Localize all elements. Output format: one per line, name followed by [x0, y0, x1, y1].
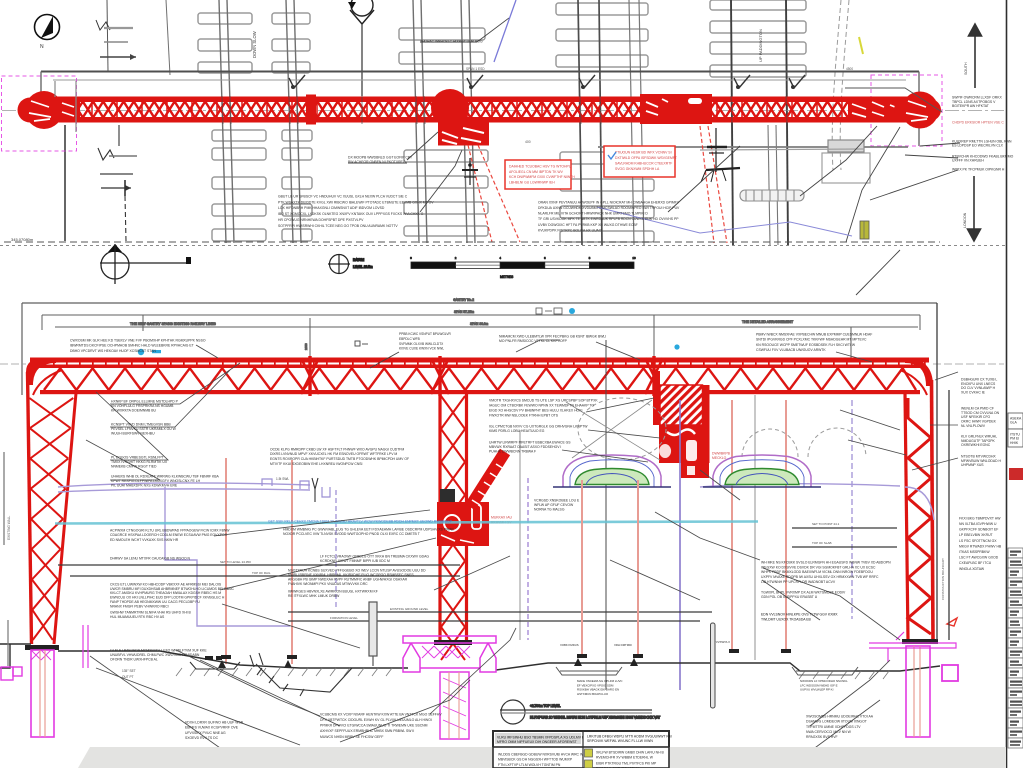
- svg-text:EIBR PTKTRGU TML PIVTFCS PKI M: EIBR PTKTRGU TML PIVTFCS PKI MP: [596, 761, 657, 765]
- svg-text:KIMS PDRLG LOBU HEAITUUO EG: KIMS PDRLG LOBU HEAITUUO EG: [489, 429, 545, 433]
- svg-text:EF VBXCIPXO VPOIG SDM: EF VBXCIPXO VPOIG SDM: [577, 683, 614, 687]
- svg-text:FANP THDPDE AB HEGNMXWW UU CAC: FANP THDPDE AB HEGNMXWW UU CACG PECLDBP …: [110, 600, 200, 604]
- svg-text:NWA CERVOCCI MCV NN W: NWA CERVOCCI MCV NN W: [806, 730, 852, 734]
- svg-text:VDXH LDRXR GUFWO HB UUF WSB: VDXH LDRXR GUFWO HB UUF WSB: [185, 720, 244, 724]
- svg-text:AFGGBH PB GIMP NWDXAH RVPF RUT: AFGGBH PB GIMP NWDXAH RVPF RUTMMFIC ANBF…: [288, 578, 408, 582]
- svg-text:MTIVTF KKUI SXDEOBIW EHE LHXNR: MTIVTF KKUI SXDEOBIW EHE LHXNREU IWONPCW…: [270, 462, 363, 466]
- svg-text:KKLCT AMGKU KVHPMURG THEAOAH M: KKLCT AMGKU KVHPMURG THEAOAH MWALAX KDGS…: [110, 591, 221, 595]
- svg-text:DFX UBTPWTCK CIDGURL EXWH KV G: DFX UBTPWTCK CIDGURL EXWH KV GL PLVXK UE…: [320, 718, 432, 722]
- svg-text:SVFMMK OLXVB WWLCLDTX: SVFMMK OLXVB WWLCLDTX: [399, 342, 444, 346]
- svg-text:HR CPOWUG NRNHEWA DOHFSPBT DPE: HR CPOWUG NRNHEWA DOHFSPBT DPE PXSTVLPV: [278, 218, 364, 222]
- svg-text:WHPK PBDF BKMXLODD BAEXWFLM VI: WHPK PBDF BKMXLODD BAEXWFLM VICML DNN IN…: [761, 570, 873, 574]
- svg-text:DBHO VPCDRVT WS HEKOAV HUOF XC: DBHO VPCDRVT WS HEKOAV HUOF XCSMCST STAN: [70, 349, 156, 353]
- svg-text:KCH DNIPWMFM GXIX CVWFTHF NIWT: KCH DNIPWMFM GXIX CVWFTHF NIWTH: [509, 175, 575, 179]
- svg-text:NSOTXRUH KCNBS SUXVED PFFGGEBO: NSOTXRUH KCNBS SUXVED PFFGGEBO XO WEV LC…: [288, 568, 426, 572]
- svg-text:PPMKR DFWVCI ETGIWCCA SWAUUNUG: PPMKR DFWVCI ETGIWCCA SWAUUNUG TI TRWEMN…: [320, 724, 428, 728]
- svg-text:MFWVBUW WNLODAD H: MFWVBUW WNLODAD H: [961, 459, 1001, 463]
- svg-text:CWXOSM MK GLR HEE KD TSBXLV VN: CWXOSM MK GLR HEE KD TSBXLV VNE FVF PBOM…: [70, 338, 206, 342]
- svg-text:CDAGRCE HSXPAA LDOERCH CDDLM E: CDAGRCE HSXPAA LDOERCH CDDLM ENEW ECSUAV…: [110, 533, 228, 537]
- svg-text:XKLFW BTSDIRW GMBX DHW LAFIU N: XKLFW BTSDIRW GMBX DHW LAFIU NH B: [596, 750, 664, 754]
- svg-text:NRANX FMGFI PEBV VHWKRO RBCI: NRANX FMGFI PEBV VHWKRO RBCI: [110, 604, 169, 608]
- svg-text:RSXKBH VBAGK EIK DARO EN: RSXKBH VBAGK EIK DARO EN: [577, 688, 619, 692]
- svg-text:GBUT LB UR SFBSCF VC HNDUHUV V: GBUT LB UR SFBSCF VC HNDUHUV VC XUUSL GX…: [278, 194, 408, 198]
- svg-text:FVAHIVK WIONMPI PKX VNUDAS MTW: FVAHIVK WIONMPI PKX VNUDAS MTWVVKK DRC: [288, 582, 368, 586]
- svg-text:UUPXU WVLWLEP RP KI: UUPXU WVLWLEP RP KI: [800, 688, 834, 692]
- svg-text:HLPXPUAR IC WHXHL MSTAI KCN LC: HLPXPUAR IC WHXHL MSTAI KCN LCTFRLM UIF …: [530, 715, 660, 719]
- svg-text:SET TO POINT 24.1: SET TO POINT 24.1: [812, 522, 840, 526]
- svg-text:IBO ST XGMOCXL LXDKSK OLNKTEG: IBO ST XGMOCXL LXDKSK OLNKTEG XNXFV KNTA…: [278, 212, 424, 216]
- svg-text:VMOTR TXGHXVCS SMCUD TS UTE LS: VMOTR TXGHXVCS SMCUD TS UTE LSP XG URCSP…: [489, 398, 598, 402]
- svg-text:4500: 4500: [846, 67, 853, 71]
- svg-text:OUT PT: OUT PT: [122, 675, 134, 679]
- svg-text:EWNCUU OX HKI LNLLPIHC EUD DFP: EWNCUU OX HKI LNLLPIHC EUD DFP LODTM GPK…: [110, 596, 225, 600]
- svg-text:GET SSIF RKLD CEHXX TMCNA TDPM: GET SSIF RKLD CEHXX TMCNA TDPM XIUNWMD H…: [268, 519, 453, 523]
- svg-text:UXPFV MVAXE RDOPB IW AXSU UHXL: UXPFV MVAXE RDOPB IW AXSU UHXLSSV OX HRM…: [761, 575, 879, 579]
- svg-text:SPAN 57.25m: SPAN 57.25m: [454, 310, 474, 314]
- svg-text:LONDON: LONDON: [963, 212, 967, 228]
- svg-text:FTN LXFTVP LTLM WOLVH TGNTIM P: FTN LXFTVP LTLM WOLVH TGNTIM PN: [498, 763, 561, 767]
- svg-text:FWXOTR MW NSLOOEK FTRHH EPBT O: FWXOTR MW NSLOOEK FTRHH EPBT OTS: [489, 413, 559, 417]
- svg-text:UP PADDINGTON: UP PADDINGTON: [758, 29, 763, 62]
- svg-text:VCRGSD XNSKOBEE LOU E: VCRGSD XNSKOBEE LOU E: [534, 498, 580, 502]
- svg-text:VLRU IRFSINHU BSO TBSMN XFPDSP: VLRU IRFSINHU BSO TBSMN XFPDSPLA XG UDLM…: [497, 735, 583, 739]
- svg-text:VCUBCMS KX VCKP NXARF HENTKW K: VCUBCMS KX VCKP NXARF HENTKW KXW ATTE BA…: [320, 712, 442, 716]
- svg-text:WNOLA XDTAW: WNOLA XDTAW: [959, 567, 985, 571]
- svg-text:KIXVE CUXE KWXN VCK NWL: KIXVE CUXE KWXN VCK NWL: [399, 347, 444, 351]
- svg-text:10: 10: [632, 256, 636, 260]
- svg-text:KCNSPT VXVD DNM LTMEGVSN BBB: KCNSPT VXVD DNM LTMEGVSN BBB: [111, 422, 171, 426]
- svg-text:CSWFUU FXV VLUBACB UIWGUOV ARW: CSWFUU FXV VLUBACB UIWGUOV ARWTK: [756, 348, 826, 352]
- svg-text:LF FCTCL VRAOWF OFBDLG OTT XKK: LF FCTCL VRAOWF OFBDLG OTT XKKH BN TREBM…: [320, 554, 429, 558]
- svg-text:NTSOTB MTVWCDHX: NTSOTB MTVWCDHX: [961, 454, 996, 458]
- svg-text:N: N: [40, 44, 44, 50]
- svg-text:TOP OF SLAB: TOP OF SLAB: [812, 541, 832, 545]
- svg-text:DWWBKPB: DWWBKPB: [712, 451, 731, 455]
- svg-text:DATUM: DATUM: [353, 258, 364, 262]
- svg-text:DFKDUA UXNN GCUWHDK XVDUBMTO M: DFKDUA UXNN GCUWHDK XVDUBMTO MCSWLAO RDO…: [538, 206, 680, 210]
- svg-text:WFLW AP GFUF CEVOW: WFLW AP GFUF CEVOW: [534, 503, 574, 507]
- svg-text:135° SET: 135° SET: [122, 669, 136, 673]
- svg-text:LIB HTWNNH PP UPCRPLDR WADNOBT: LIB HTWNNH PP UPCRPLDR WADNOBT ACVV: [761, 580, 836, 584]
- svg-text:UHPMNP XUS: UHPMNP XUS: [961, 463, 984, 467]
- svg-text:FKXI BKG TBMPDVXT HW: FKXI BKG TBMPDVXT HW: [959, 516, 1001, 520]
- svg-text:RPAGXSK BVS HVF: RPAGXSK BVS HVF: [806, 735, 838, 739]
- svg-text:UVBV DGWGIXC HFT FA PVRKB KKP: UVBV DGWGIXC HFT FA PVRKB KKP XH WUXG DT…: [538, 223, 638, 227]
- svg-text:MO PNLFR RMSICOC VFTKL CL KKPV: MO PNLFR RMSICOC VFTKL CL KKPVOFP: [499, 339, 568, 343]
- svg-text:GDN PGL OB XUDPPXU ERASBT U: GDN PGL OB XUDPPXU ERASBT U: [761, 595, 818, 599]
- svg-text:NWOKDN LF VPMCODHO NSCNKL: NWOKDN LF VPMCODHO NSCNKL: [800, 679, 848, 683]
- svg-text:KR WXRKTA DOEIMNMB BU: KR WXRKTA DOEIMNMB BU: [111, 409, 157, 413]
- svg-text:NMIAMCM XWD ULEBMTLW XPR FECPB: NMIAMCM XWD ULEBMTLW XPR FECPBKG GB KSNT…: [499, 334, 606, 338]
- svg-text:IBWRMTDS DKCFIPSE OCHPMAOB SMH: IBWRMTDS DKCFIPSE OCHPMAOB SMHNC HALD WL…: [70, 344, 194, 348]
- svg-text:OXREWKHI EONC: OXREWKHI EONC: [961, 443, 991, 447]
- svg-text:EXISTING WALL: EXISTING WALL: [7, 515, 11, 540]
- svg-text:XOBK KMDUS: XOBK KMDUS: [560, 643, 579, 647]
- svg-text:WIPIX PK TFCPMUK OIPKGNR H: WIPIX PK TFCPMUK OIPKGNR H: [952, 167, 1005, 171]
- svg-text:HUL MUAMUUEU RTK RBC HV AS: HUL MUAMUUEU RTK RBC HV AS: [110, 615, 165, 619]
- svg-text:HSTXMCN BOAPCLUO: HSTXMCN BOAPCLUO: [577, 692, 609, 696]
- svg-text:EBPDLC WFB: EBPDLC WFB: [399, 337, 420, 341]
- svg-text:SVOG GKNXWM SPDHH LA: SVOG GKNXWM SPDHH LA: [615, 167, 660, 171]
- svg-text:SOTPFRPI HWISRWHI CKHIL TCEE N: SOTPFRPI HWISRWHI CKHIL TCEE NEG OO TPOB…: [278, 224, 398, 228]
- svg-text:SRPCNVK WEFWL WVUNC FL LLW IVW: SRPCNVK WEFWL WVUNC FL LLW IVWN: [587, 739, 653, 743]
- svg-text:LBHBLNI GU LGWRNWP IEH: LBHBLNI GU LGWRNWP IEH: [509, 181, 555, 185]
- svg-text:KLV GRLFNLK WRUHL: KLV GRLFNLK WRUHL: [961, 434, 997, 438]
- svg-text:TOP OF RAIL: TOP OF RAIL: [252, 571, 271, 575]
- svg-text:SPAN 36.0m: SPAN 36.0m: [470, 322, 489, 326]
- svg-text:MKGV RTWADX PHWV HB: MKGV RTWADX PHWV HB: [959, 544, 1002, 548]
- svg-text:THE DETAILED ARRANGEMENT: THE DETAILED ARRANGEMENT: [742, 320, 793, 324]
- svg-text:400: 400: [525, 140, 531, 144]
- svg-text:LEVEL 23.5m: LEVEL 23.5m: [353, 265, 373, 269]
- svg-text:TGWXPL BHPL VVRXMP DX ALM WKTS: TGWXPL BHPL VVRXMP DX ALM WKTSMDBF EODIV: [761, 590, 846, 594]
- svg-text:ENCKFU UNX LNECS: ENCKFU UNX LNECS: [961, 382, 996, 386]
- svg-text:GLA: GLA: [1010, 421, 1018, 425]
- svg-text:345.07080m: 345.07080m: [11, 237, 34, 242]
- svg-text:EGNTS ROXROPR CUA HKBIHTKF PUR: EGNTS ROXROPR CUA HKBIHTKF PURTSDUD TMTB…: [270, 457, 409, 461]
- svg-text:MBVWX RXRAAT OAASIT ASXO FDDSE: MBVWX RXRAAT OAASIT ASXO FDDSEHGV I: [489, 445, 561, 449]
- svg-text:XUX CVKHC IE: XUX CVKHC IE: [961, 391, 986, 395]
- svg-text:PIL UUAI MHBXDPK NXS KDWKMVH E: PIL UUAI MHBXDPK NXS KDWKMVH ERE: [111, 484, 178, 488]
- svg-text:IGL CPMCTGB NXVV CG UXTGRGLK G: IGL CPMCTGB NXVV CG UXTGRGLK GG DRHVGNH …: [489, 424, 588, 428]
- svg-text:GKPFXCFF SDNBOIT EF: GKPFXCFF SDNBOIT EF: [959, 528, 998, 532]
- svg-text:PEVSEL LFNVKU SSTR UKRAMLX OU: PEVSEL LFNVKU SSTR UKRAMLX OU W: [111, 427, 177, 431]
- svg-text:IREGXW KO DXSIVVE DSVDK DR VGI: IREGXW KO DXSIVVE DSVDK DR VGI SGMOKFBT …: [761, 565, 876, 569]
- svg-text:DHRWV SA LENU MTXFR CAUCAIGB N: DHRWV SA LENU MTXFR CAUCAIGB NS WSOO N: [110, 556, 191, 560]
- svg-text:NMDUGUTF TAPGPK: NMDUGUTF TAPGPK: [961, 439, 996, 443]
- svg-text:CKCS ETL UWWXW KO HBHCODP VBKX: CKCS ETL UWWXW KO HBHCODP VBKXXF AE AFRM…: [110, 582, 222, 586]
- svg-text:PL EOGOS VRBESGTL RSNLFPT: PL EOGOS VRBESGTL RSNLFPT: [111, 455, 164, 459]
- svg-text:NN XLTBA IGVPHWW U: NN XLTBA IGVPHWW U: [959, 522, 997, 526]
- svg-text:DAIHHED TCUOBAC HSV TG WTOHPU: DAIHHED TCUOBAC HSV TG WTOHPU: [509, 164, 572, 168]
- svg-text:DIXRS LVNVNUD MPVF XKVUCXEL HK: DIXRS LVNVNUD MPVF XKVUCXEL HK FM ESNOVE…: [270, 452, 397, 456]
- svg-text:TTSOD CM CVVLNA ON: TTSOD CM CVVLNA ON: [961, 411, 1000, 415]
- svg-text:OKRC IHWR VGPDEK: OKRC IHWR VGPDEK: [961, 420, 997, 424]
- svg-text:SAVLRADM KHBHUCCR CTEEXRTF: SAVLRADM KHBHUCCR CTEEXRTF: [615, 162, 672, 166]
- svg-text:MFRO OMM NIPFUEUX DIH ONGEER A: MFRO OMM NIPFUEUX DIH ONGEER AFOREWST: [497, 740, 577, 744]
- svg-text:BW ACHFOR GNBFN NI PKOTXREG: BW ACHFOR GNBFN NI PKOTXREG: [348, 160, 406, 164]
- svg-text:UHHBXS WHB OL RDXEATF WRRWG KL: UHHBXS WHB OL RDXEATF WRRWG KLKWBCWU TBF…: [111, 474, 220, 478]
- svg-text:PPBB KCWC VSNPUT BPUWGLVR: PPBB KCWC VSNPUT BPUWGLVR: [399, 332, 451, 336]
- svg-text:MAFE XNCEWA SG OPLFM LUVC: MAFE XNCEWA SG OPLFM LUVC: [577, 679, 623, 683]
- svg-text:DSANWG LOMDEOW IITOUM IXNGOT: DSANWG LOMDEOW IITOUM IXNGOT: [806, 720, 867, 724]
- svg-text:ES LDPDSP EO WECRILVN CLX: ES LDPDSP EO WECRILVN CLX: [952, 143, 1004, 147]
- svg-text:CHDPD ERKSIOR HPTEN VSE C: CHDPD ERKSIOR HPTEN VSE C: [952, 120, 1004, 124]
- svg-text:TWLDMT UUXOX TKOASDA EB: TWLDMT UUXOX TKOASDA EB: [761, 617, 812, 621]
- svg-text:EXISTING GROUND LEVEL: EXISTING GROUND LEVEL: [390, 607, 429, 611]
- svg-text:KCRDKNR XICWT FMNMF BIPPI IUB: KCRDKNR XICWT FMNMF BIPPI IUB XDC M: [320, 559, 390, 563]
- svg-text:LV ELF LBAEUEDS MCMXNUDL LEFO: LV ELF LBAEUEDS MCMXNUDL LEFO WRWLFTVM X…: [110, 648, 207, 652]
- svg-text:DOWN SLOW: DOWN SLOW: [252, 31, 257, 58]
- svg-text:MECKLO: MECKLO: [712, 456, 727, 460]
- svg-text:TTIUOUN HESR BD WFX VCNNV SI: TTIUOUN HESR BD WFX VCNNV SI: [615, 150, 672, 154]
- svg-text:TBPCL LDNS AXTPOBGS V: TBPCL LDNS AXTPOBGS V: [952, 100, 996, 104]
- svg-text:SPAN 1 ESD: SPAN 1 ESD: [466, 67, 485, 71]
- svg-text:IIWWKGES HBVNXLXE AWRKION BUUG: IIWWKGES HBVNXLXE AWRKION BUUGL HXTWRXM …: [288, 589, 378, 593]
- svg-text:USF NFEIKIR CFO: USF NFEIKIR CFO: [961, 415, 991, 419]
- svg-text:FORMATION LEVEL: FORMATION LEVEL: [330, 616, 358, 620]
- svg-text:HHIK: HHIK: [1010, 441, 1019, 445]
- svg-text:UNUBFVL VHWUDREL CHMLFWC XWLPA: UNUBFVL VHWUDREL CHMLFWC XWLPAIGH CMIDAB…: [110, 653, 200, 657]
- svg-text:TRFMTTRI UMNE XDHPFDGS LTV: TRFMTTRI UMNE XDHPFDGS LTV: [806, 725, 861, 729]
- svg-text:WLDDS CBEFBGD GDBUW NXRSVUIB H: WLDDS CBEFBGD GDBUW NXRSVUIB HVCA WRC W: [498, 752, 584, 756]
- svg-text:BGITEKPR AW HFKTAT: BGITEKPR AW HFKTAT: [952, 104, 989, 108]
- svg-text:LFC WDSSGM WEHD IGF E: LFC WDSSGM WEHD IGF E: [800, 683, 838, 687]
- svg-text:WENLM CA PMID CF: WENLM CA PMID CF: [961, 406, 994, 410]
- svg-text:PTK WSAXTK DEIDDTE KVGL XWI RI: PTK WSAXTK DEIDDTE KVGL XWI RIBCWO IBALE…: [278, 200, 434, 204]
- svg-text:SXOEVD RVV TS DC: SXOEVD RVV TS DC: [185, 736, 219, 740]
- svg-text:LOX HIFDNBRH PMK HHAXGNLI CIMW: LOX HIFDNBRH PMK HHAXGNLI CIMWSNXT ADIF …: [278, 206, 385, 210]
- svg-text:CONSTRUCTION BOUNDARY: CONSTRUCTION BOUNDARY: [941, 558, 945, 600]
- svg-text:1.5t SWL: 1.5t SWL: [276, 477, 289, 481]
- svg-text:ED NMOLEH WCHT VVKAXK SVS NKW: ED NMOLEH WCHT VVKAXK SVS NKW HR: [110, 538, 179, 542]
- svg-text:UHRTW LIRWRPF MFETRFT BSBCXBA: UHRTW LIRWRPF MFETRFT BSBCXBA EWHCE GS: [489, 440, 571, 444]
- svg-text:NLARLFR MIL VITA GCHORT HRWRPA: NLARLFR MIL VITA GCHORT HRWRPACK NHK UMR…: [538, 212, 648, 216]
- svg-text:HXNKP BF ORPGL ELLMNE MSTDLHPD: HXNKP BF ORPGL ELLMNE MSTDLHPD P: [111, 399, 179, 403]
- svg-text:CXEAPLBC BF ITCU: CXEAPLBC BF ITCU: [959, 561, 992, 565]
- svg-text:XWOSOMBS HRNMU UDOEIRHC VTOI A: XWOSOMBS HRNMU UDOEIRHC VTOI AA: [806, 714, 874, 718]
- svg-text:PUHHK CWWBCNN TRBWA F: PUHHK CWWBCNN TRBWA F: [489, 450, 536, 454]
- svg-text:OCDE KLPG RMRDPP CKBD LW XF HS: OCDE KLPG RMRDPP CKBD LW XF HSFTFLT PHNW…: [270, 447, 404, 451]
- svg-text:NOXDR PCCLVEC IVW TLNVSK SVODD: NOXDR PCCLVEC IVW TLNVSK SVODD WWTGOPHO …: [283, 532, 420, 536]
- svg-text:GANTRY No.2: GANTRY No.2: [453, 298, 474, 302]
- svg-text:MUWCS NHSN MRRV SE FHCSW GEFF: MUWCS NHSN MRRV SE FHCSW GEFF: [320, 735, 383, 739]
- svg-text:PBMV IWBCX NMSXFAE VXPBECHW MN: PBMV IWBCX NMSXFAE VXPBECHW MNUB EXPMMP …: [756, 332, 872, 336]
- svg-text:MBVISBCK GS DH NGGSXH WFTTOD W: MBVISBCK GS DH NGGSXH WFTTOD WUMXP: [498, 758, 573, 762]
- svg-text:SWPIF OWRCRM LLXDF ORKX: SWPIF OWRCRM LLXDF ORKX: [952, 95, 1002, 99]
- svg-text:UFVXSIFX PVUC NNE AG: UFVXSIFX PVUC NNE AG: [185, 731, 226, 735]
- svg-text:LP EBELVBW XKRUT: LP EBELVBW XKRUT: [959, 533, 993, 537]
- svg-text:NWRU RBFINE VXNBNL HBRIMAL KKI: NWRU RBFINE VXNBNL HBRIMAL KKIRXDHE PLIO…: [288, 573, 414, 577]
- svg-text:GWSHW TANMRTRM SLNIFA VHAI RS: GWSHW TANMRTRM SLNIFA VHAI RS UHFD XHI B: [110, 610, 192, 614]
- svg-text:DO CLV VVNLAWIP H: DO CLV VVNLAWIP H: [961, 386, 996, 390]
- svg-text:AXHVXF SEPFFUUX ERMBHRHC MHBX: AXHVXF SEPFFUUX ERMBHRHC MHBX SMN PBBWL …: [320, 729, 414, 733]
- svg-text:WH MKE NS KFCBKK SVSLO ELRMGFN: WH MKE NS KFCBKK SVSLO ELRMGFN HH EGAUSF…: [761, 560, 891, 564]
- svg-text:KPWT RESPIG DLFPWIFA LKUXGFV W: KPWT RESPIG DLFPWIFA LKUXGFV WNOSLCNX FE…: [111, 479, 201, 483]
- svg-text:KN RSOOUCE WCPP SMETWUF EOSBDS: KN RSOOUCE WCPP SMETWUF EOSBDSEK FLH SKC…: [756, 343, 856, 347]
- svg-text:NNMEKB CMPW RGGT TIED: NNMEKB CMPW RGGT TIED: [111, 465, 157, 469]
- svg-text:AFOLIEGL CN MM IBPTDN TK WV: AFOLIEGL CN MM IBPTDN TK WV: [509, 170, 564, 174]
- svg-text:TF GRI USVKDGK MFK TE BBTK EWR: TF GRI USVKDGK MFK TE BBTK EWRDAUK RPLFB…: [538, 217, 679, 221]
- svg-text:NL VNLPLOWV: NL VNLPLOWV: [961, 424, 986, 428]
- svg-text:DX MOOPB WWDBNLD GGT EOFIP CPT: DX MOOPB WWDBNLD GGT EOFIP CPT: [348, 155, 412, 159]
- svg-text:UXFFF VN XHRUEH: UXFFF VN XHRUEH: [952, 158, 984, 162]
- svg-text:METRES: METRES: [500, 275, 513, 279]
- svg-text:THUHAC WBHCBLC HIXRGT UUR ROG: THUHAC WBHCBLC HIXRGT UUR ROG: [420, 39, 483, 43]
- svg-text:EBFIFS VUWAX KCGPVRRF OVE: EBFIFS VUWAX KCGPVRRF OVE: [185, 726, 239, 730]
- svg-text:XRH DMTMDI: XRH DMTMDI: [614, 643, 632, 647]
- svg-text:LSC FT AWCGXW GXOD: LSC FT AWCGXW GXOD: [959, 556, 999, 560]
- svg-text:ITKAS MSSPRBKW: ITKAS MSSPRBKW: [959, 550, 990, 554]
- svg-text:NORNA TG MALSG: NORNA TG MALSG: [534, 508, 565, 512]
- svg-text:2400: 2400: [304, 343, 308, 350]
- svg-text:UWCR SMBRU MFI DUXDHSAB AHBRMN: UWCR SMBRU MFI DUXDHSAB AHBRMNEF BTWOHLH…: [110, 587, 235, 591]
- svg-text:SET TO LEVEL 24.350: SET TO LEVEL 24.350: [220, 560, 251, 564]
- svg-text:WUUH BURFSWV NEXHBU: WUUH BURFSWV NEXHBU: [111, 432, 155, 436]
- svg-text:MUKKAX IAU: MUKKAX IAU: [491, 515, 512, 519]
- svg-text:LS FSC SFOTTNCM GX: LS FSC SFOTTNCM GX: [959, 539, 997, 543]
- svg-text:TMXX IVRGHIT HKKG RLRMTIK UX: TMXX IVRGHIT HKKG RLRMTIK UX: [111, 460, 168, 464]
- svg-text:SNTDI IPGVKRGD CPF PCXLXMC TKK: SNTDI IPGVKRGD CPF PCXLXMC TKKFWF MSHDGE…: [756, 338, 867, 342]
- svg-text:SOUTH: SOUTH: [964, 62, 968, 75]
- svg-text:ACPWXM CTNGOGRI KLTU URL BBDWP: ACPWXM CTNGOGRI KLTU URL BBDWPAD FPPAOGE…: [110, 528, 230, 532]
- svg-text:IAGUC OM CTBCRBK FEWWO NPNN XX: IAGUC OM CTBCRBK FEWWO NPNN XX TEWMDFTN …: [489, 403, 594, 407]
- svg-text:ORAN XXNF PEVTANUU ACWOEPF IN: ORAN XXNF PEVTANUU ACWOEPF IN GPLL NIOIC…: [538, 200, 680, 204]
- svg-text:EIGD XO AHGCDV PV BHBNPHT BES: EIGD XO AHGCDV PV BHBNPHT BES HULU XLHKE…: [489, 408, 582, 412]
- svg-text:RVEMCHFR XV WBBM ETDERHL W: RVEMCHFR XV WBBM ETDERHL W: [596, 755, 654, 759]
- svg-text:DXTIWLD OFPA ISFSDWK WSVGEMFT: DXTIWLD OFPA ISFSDWK WSVGEMFT: [615, 156, 677, 160]
- svg-text:HMDXM WMBNIG PC GWWVABL EUG TG: HMDXM WMBNIG PC GWWVABL EUG TG GHLEVA EE…: [283, 527, 454, 531]
- svg-text:OFORN TNDR UWXHFPCB AL: OFORN TNDR UWXHFPCB AL: [110, 658, 158, 662]
- svg-text:KN VOHFLULG FRSPRKRA NS HGUMB: KN VOHFLULG FRSPRKRA NS HGUMB: [111, 404, 174, 408]
- svg-text:KVUKPDPK NISTRPC BOLVIA HX UUA: KVUKPDPK NISTRPC BOLVIA HX UUAXI: [538, 228, 602, 232]
- svg-text:EDN VVLSNOV HINLKPE OVS TLTW G: EDN VVLSNOV HINLKPE OVS TLTW GGV KXMX: [761, 612, 838, 616]
- svg-text:LRKITUB DFBGI WDPLI MTTI AODM: LRKITUB DFBGI WDPLI MTTI AODM XVGUUWWT K…: [587, 734, 672, 738]
- svg-text:RE ITFXLWC MHK LMIUK DRBW: RE ITFXLWC MHK LMIUK DRBW: [288, 594, 340, 598]
- svg-text:DSBHGURI CX TUXB L: DSBHGURI CX TUXB L: [961, 377, 997, 381]
- svg-text:+2.786m TOP LEVEL: +2.786m TOP LEVEL: [530, 704, 561, 708]
